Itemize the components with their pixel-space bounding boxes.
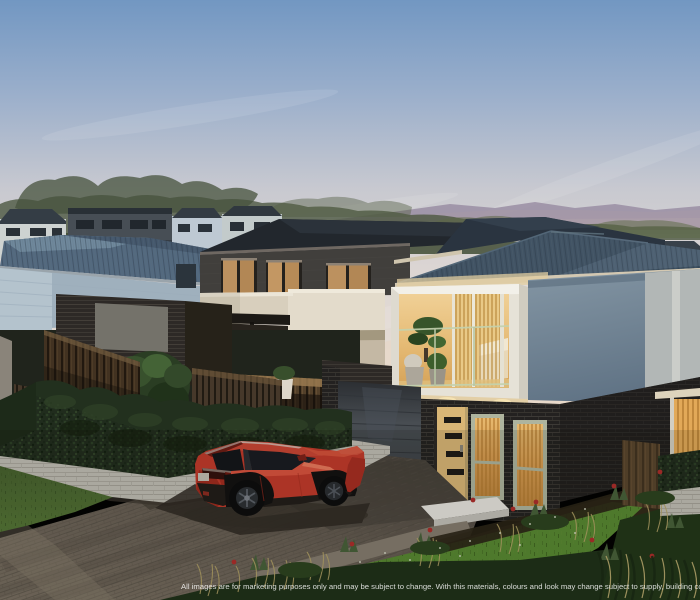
svg-text:All images are for marketing p: All images are for marketing purposes on…: [181, 582, 700, 591]
